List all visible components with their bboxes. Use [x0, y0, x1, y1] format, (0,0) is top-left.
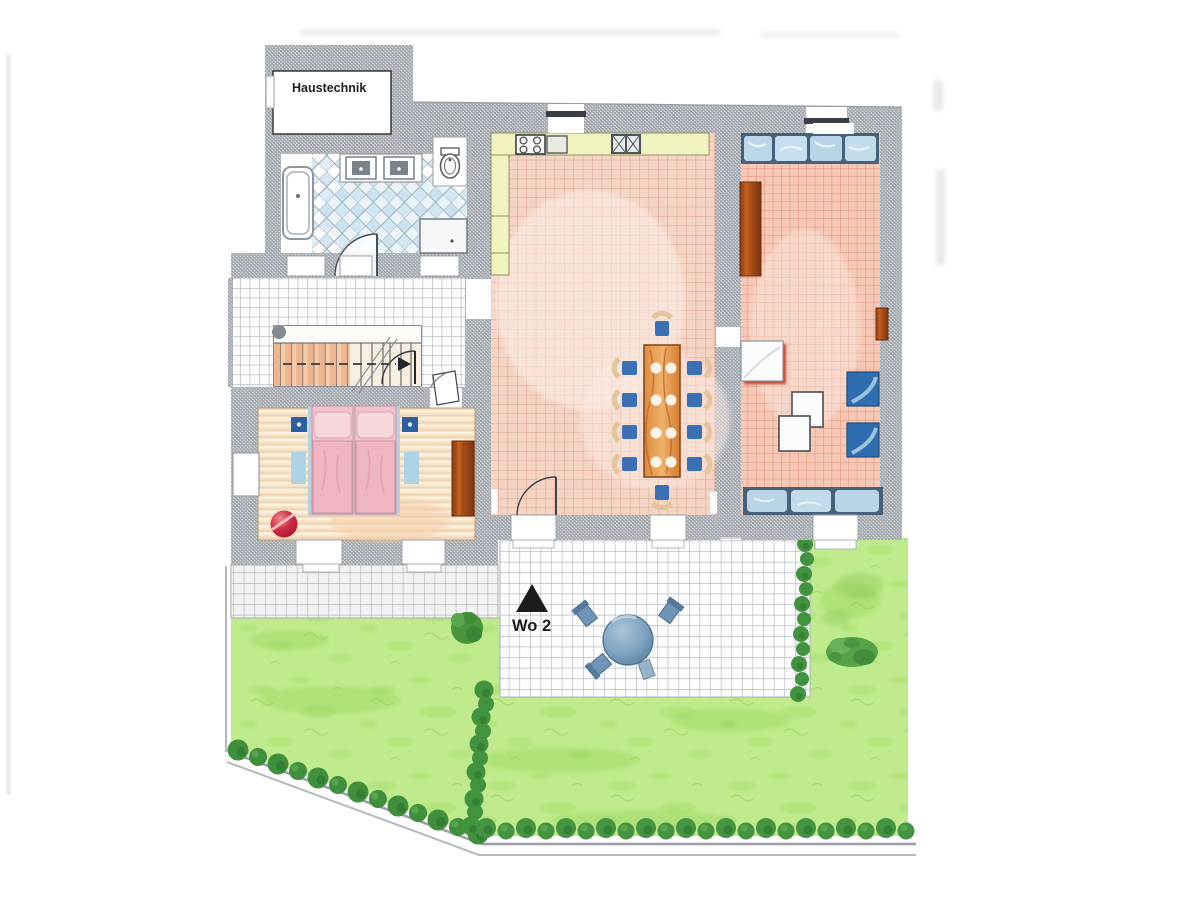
svg-text:Wo 2: Wo 2 — [512, 617, 551, 635]
svg-text:Haustechnik: Haustechnik — [292, 81, 366, 95]
